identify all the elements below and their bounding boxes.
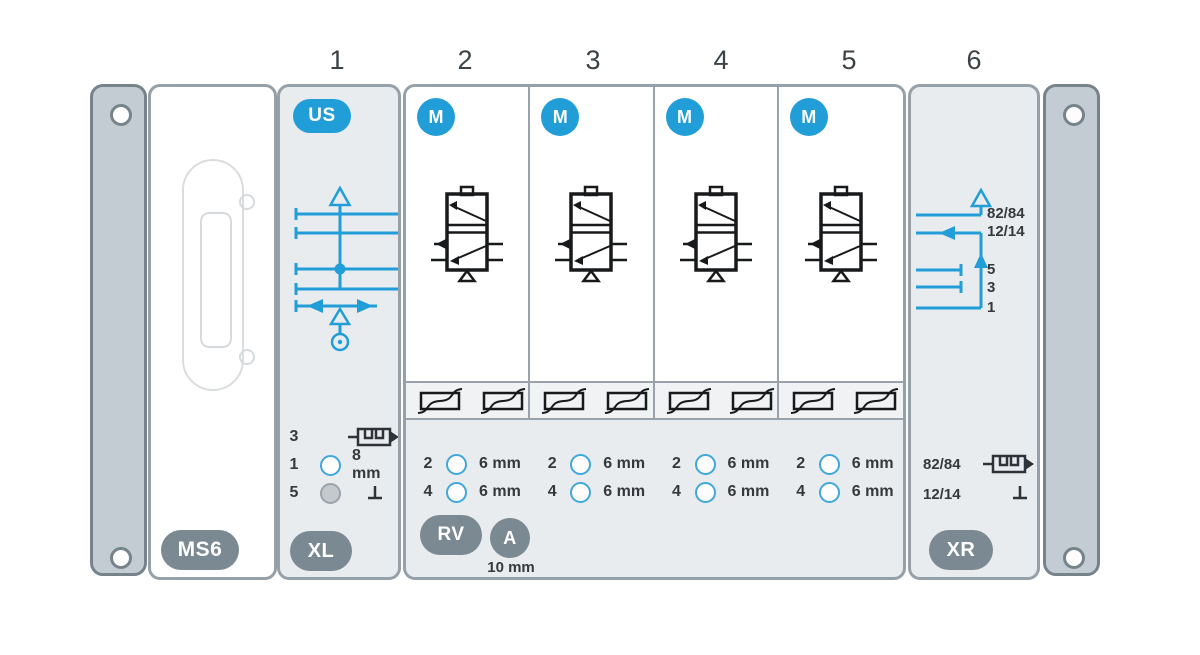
plug-icon (1011, 484, 1029, 504)
flow-control-icon (603, 388, 651, 414)
slot-number-2: 2 (445, 44, 485, 76)
port-number: 4 (420, 483, 436, 501)
screw-hole-icon (1063, 547, 1085, 569)
m-badge: M (541, 98, 579, 136)
port-number: 2 (544, 455, 560, 473)
port-number: 82/84 (923, 456, 979, 473)
m-badge: M (666, 98, 704, 136)
valve-area: M (530, 87, 654, 383)
port-row: 2 6 mm (669, 450, 779, 478)
port-number: 12/14 (923, 486, 979, 503)
fitting-size: 6 mm (479, 455, 521, 473)
flow-control-band (530, 383, 654, 420)
valve-area: M (779, 87, 903, 383)
slot-number-5: 5 (829, 44, 869, 76)
pilot-schematic-icon (911, 178, 1040, 318)
valve-terminal-diagram: 1 2 3 4 5 6 MS6 US (0, 0, 1200, 655)
us-port-row: 1 8 mm (286, 453, 302, 477)
pilot-line-label: 1 (987, 299, 995, 317)
valve-symbol-icon (427, 185, 507, 285)
port-number: 2 (793, 455, 809, 473)
fitting-size: 6 mm (603, 455, 645, 473)
valve-symbol-icon (551, 185, 631, 285)
slice-ports: 2 6 mm 4 6 mm (530, 420, 654, 506)
us-badge: US (293, 99, 351, 133)
xr-port-row: 12/14 (923, 482, 1029, 506)
tube-fitting-icon (570, 454, 591, 475)
screw-hole-icon (110, 547, 132, 569)
port-row: 2 6 mm (420, 450, 530, 478)
valve-symbol-icon (676, 185, 756, 285)
left-endplate (90, 84, 147, 576)
fitting-size: 6 mm (728, 483, 770, 501)
dsub-connector-icon (182, 159, 244, 391)
flow-control-band (655, 383, 779, 420)
slot-number-3: 3 (573, 44, 613, 76)
a-size-label: 10 mm (476, 559, 546, 576)
silencer-icon (983, 453, 1035, 475)
valve-slices: M 2 6 mm 4 6 mm (406, 87, 903, 506)
us-supply-module: US 3 1 8 (277, 84, 401, 580)
right-endplate (1043, 84, 1100, 576)
pilot-line-label: 82/84 (987, 205, 1025, 223)
valve-symbol-icon (801, 185, 881, 285)
tube-fitting-icon (320, 455, 341, 476)
screw-hole-icon (110, 104, 132, 126)
slice-ports: 2 6 mm 4 6 mm (779, 420, 903, 506)
port-row: 4 6 mm (420, 478, 530, 506)
us-port-row: 3 (286, 425, 302, 449)
xr-module: 82/84 12/14 5 3 1 82/84 12/14 XR (908, 84, 1040, 580)
fitting-size: 6 mm (852, 455, 894, 473)
valve-slice-3: M 2 6 mm 4 6 mm (530, 87, 654, 506)
pilot-line-label: 12/14 (987, 223, 1025, 241)
m-badge: M (417, 98, 455, 136)
flow-control-icon (416, 388, 464, 414)
port-row: 2 6 mm (793, 450, 903, 478)
port-row: 4 6 mm (544, 478, 654, 506)
tube-fitting-icon (695, 454, 716, 475)
fitting-size: 6 mm (852, 483, 894, 501)
flow-control-band (406, 383, 530, 420)
port-number: 1 (286, 456, 302, 474)
blanking-fitting-icon (320, 483, 341, 504)
fitting-size: 6 mm (479, 483, 521, 501)
ms6-module: MS6 (148, 84, 277, 580)
xr-port-row: 82/84 (923, 452, 1035, 476)
ms6-badge: MS6 (161, 530, 239, 570)
plug-icon (366, 484, 384, 504)
tube-fitting-icon (570, 482, 591, 503)
pilot-line-label: 5 (987, 261, 995, 279)
port-number: 2 (669, 455, 685, 473)
dsub-screw-icon (239, 349, 255, 365)
port-row: 4 6 mm (793, 478, 903, 506)
flow-control-icon (540, 388, 588, 414)
rv-badge: RV (420, 515, 482, 555)
slot-number-4: 4 (701, 44, 741, 76)
fitting-size: 6 mm (603, 483, 645, 501)
screw-hole-icon (1063, 104, 1085, 126)
slice-ports: 2 6 mm 4 6 mm (406, 420, 530, 506)
xl-badge: XL (290, 531, 352, 571)
flow-control-band (779, 383, 903, 420)
slot-number-1: 1 (317, 44, 357, 76)
port-number: 5 (286, 484, 302, 502)
pilot-line-label: 3 (987, 279, 995, 297)
port-number: 4 (669, 483, 685, 501)
port-number: 2 (420, 455, 436, 473)
flow-control-icon (479, 388, 527, 414)
flow-control-icon (852, 388, 900, 414)
dsub-screw-icon (239, 194, 255, 210)
silencer-icon (348, 426, 400, 448)
tube-fitting-icon (446, 454, 467, 475)
port-number: 4 (544, 483, 560, 501)
port-row: 4 6 mm (669, 478, 779, 506)
port-row: 2 6 mm (544, 450, 654, 478)
port-number: 4 (793, 483, 809, 501)
valve-slice-2: M 2 6 mm 4 6 mm (406, 87, 530, 506)
slice-ports: 2 6 mm 4 6 mm (655, 420, 779, 506)
valve-section: M 2 6 mm 4 6 mm (403, 84, 906, 580)
valve-area: M (655, 87, 779, 383)
port-number: 3 (286, 428, 302, 446)
fitting-size: 6 mm (728, 455, 770, 473)
flow-control-icon (789, 388, 837, 414)
fitting-size: 8 mm (352, 447, 380, 483)
valve-area: M (406, 87, 530, 383)
dsub-pinfield-icon (200, 212, 232, 348)
flow-control-icon (665, 388, 713, 414)
slot-number-6: 6 (954, 44, 994, 76)
tube-fitting-icon (819, 454, 840, 475)
tube-fitting-icon (695, 482, 716, 503)
xr-badge: XR (929, 530, 993, 570)
us-port-row: 5 (286, 481, 302, 505)
valve-slice-5: M 2 6 mm 4 6 mm (779, 87, 903, 506)
valve-slice-4: M 2 6 mm 4 6 mm (655, 87, 779, 506)
supply-schematic-icon (280, 183, 401, 358)
m-badge: M (790, 98, 828, 136)
flow-control-icon (728, 388, 776, 414)
tube-fitting-icon (446, 482, 467, 503)
tube-fitting-icon (819, 482, 840, 503)
a-badge: A (490, 518, 530, 558)
